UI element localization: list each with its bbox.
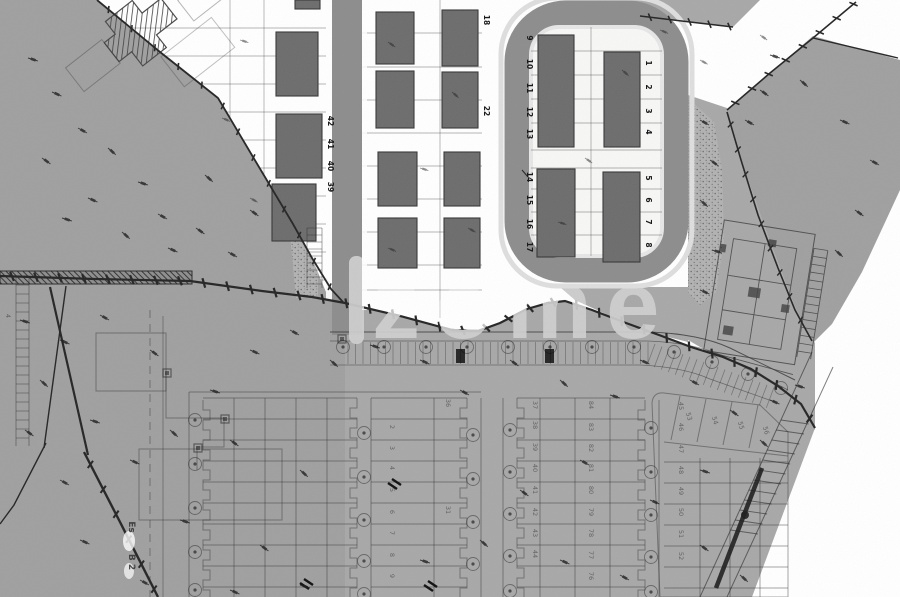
scanned-site-plan-page: Es B 2 4 4241403918229101112131415161712… [0, 0, 900, 597]
scan-noise-overlay [0, 0, 900, 597]
site-plan-scan: Es B 2 4 4241403918229101112131415161712… [0, 0, 900, 597]
